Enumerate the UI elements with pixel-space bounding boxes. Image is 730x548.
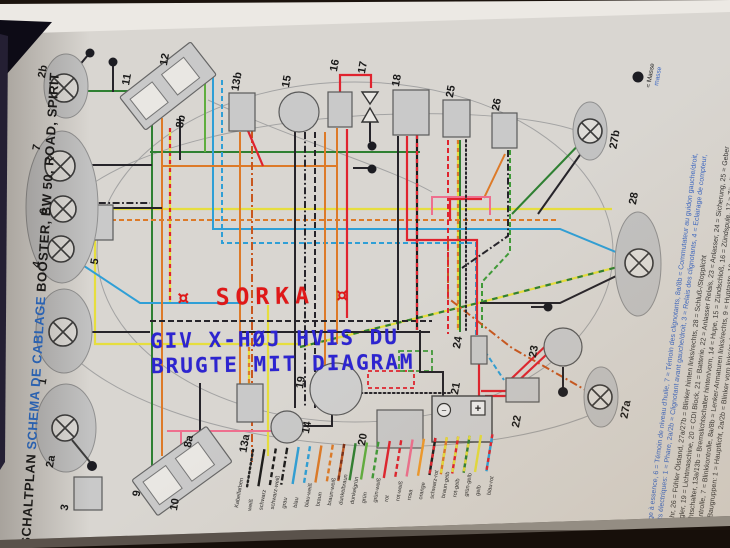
diagram-area: − + [0,0,730,548]
warm-tint [0,0,730,548]
watermark-red-sorka: ¤ SORKA ¤ [176,282,355,311]
watermark-blue-line1: GIV X-HØJ HVIS DU [150,325,399,353]
watermark-blue-line2: BRUGTE MIT DIAGRAM [151,350,415,379]
photo-frame: − + [0,0,730,548]
wiring-diagram-svg: − + [0,0,730,548]
